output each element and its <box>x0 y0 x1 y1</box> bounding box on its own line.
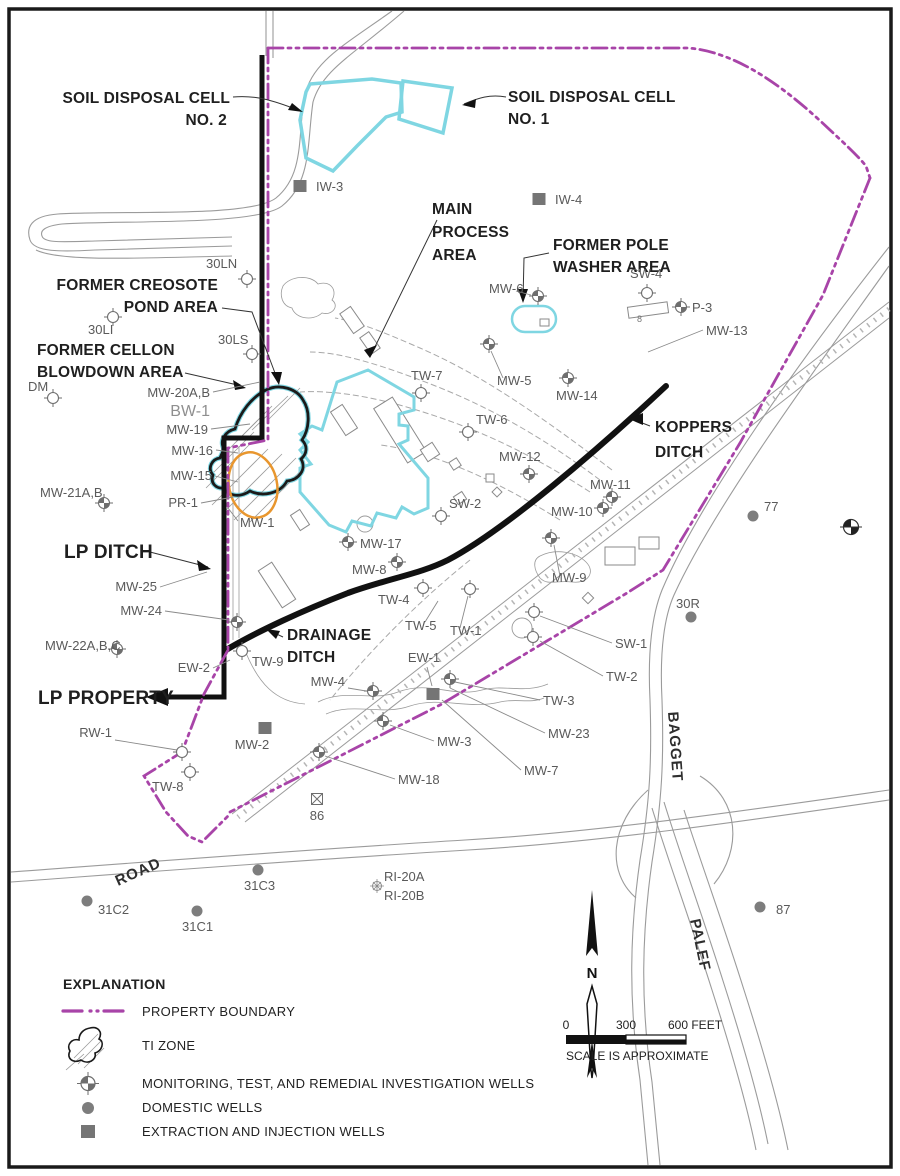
well-EW-2: EW-2 <box>178 660 210 675</box>
soil-disposal-cell-1-outline <box>399 81 452 133</box>
well-label: TW-9 <box>252 654 284 669</box>
well-label: MW-12 <box>499 449 541 464</box>
monitoring-well-icon <box>77 1072 99 1095</box>
label-cellon-blowdown: BLOWDOWN AREA <box>37 364 184 381</box>
well-30R: 30R <box>676 596 700 623</box>
well-label: SW-4 <box>630 266 662 281</box>
well-MW-16: MW-16 <box>171 443 213 458</box>
legend-item-label: TI ZONE <box>142 1038 195 1053</box>
legend-item-label: PROPERTY BOUNDARY <box>142 1004 295 1019</box>
well-MW-1: MW-1 <box>240 515 274 530</box>
well-leader-line <box>325 756 395 779</box>
well-label: MW-16 <box>171 443 213 458</box>
well-IW-4: IW-4 <box>533 192 583 207</box>
railroad-corridor <box>232 302 889 822</box>
well-label: MW-13 <box>706 323 748 338</box>
label-pole-washer: FORMER POLE <box>553 237 669 254</box>
well-31C2: 31C2 <box>82 896 130 918</box>
well-31C1: 31C1 <box>182 906 213 935</box>
well-leader-line <box>455 682 540 700</box>
well-label: BW-1 <box>170 403 210 420</box>
well-label: MW-1 <box>240 515 274 530</box>
site-map-page: SOIL DISPOSAL CELL NO. 2 SOIL DISPOSAL C… <box>0 0 900 1176</box>
scale-tick-600: 600 FEET <box>668 1018 723 1032</box>
well-label: 31C2 <box>98 902 129 917</box>
well-MW-10: MW-10 <box>551 499 612 519</box>
ti-zone-icon <box>66 1028 104 1070</box>
well-label: 30LN <box>206 256 237 271</box>
well-label: 77 <box>764 499 778 514</box>
well-TW-6: TW-6 <box>459 412 508 441</box>
well-MW-22A,B,C: MW-22A,B,C <box>45 638 126 658</box>
well-label: IW-4 <box>555 192 582 207</box>
well-leader-line <box>165 611 229 620</box>
extraction-well-icon <box>81 1125 95 1138</box>
legend-item-label: EXTRACTION AND INJECTION WELLS <box>142 1124 385 1139</box>
well-label: 31C3 <box>244 878 275 893</box>
soil-disposal-cell-2-outline <box>300 79 402 171</box>
well-MW-8: MW-8 <box>352 553 406 577</box>
label-drainage-ditch: DRAINAGE <box>287 627 371 644</box>
label-main-process: PROCESS <box>432 224 509 241</box>
label-cellon-blowdown: FORMER CELLON <box>37 342 175 359</box>
well-leader-line <box>540 641 603 676</box>
well-leader-line <box>450 688 545 733</box>
well-label: MW-5 <box>497 373 531 388</box>
well-label: MW-20A,B <box>147 385 210 400</box>
well-label: TW-3 <box>543 693 575 708</box>
legend-item-label: DOMESTIC WELLS <box>142 1100 263 1115</box>
label-soil-cell-1: NO. 1 <box>508 111 550 128</box>
well-label: MW-25 <box>115 579 157 594</box>
road-label-road: ROAD <box>113 855 164 890</box>
road-label-bagget: BAGGET <box>664 711 686 782</box>
well-label: MW-11 <box>590 477 631 492</box>
well-label: MW-23 <box>548 726 590 741</box>
well-MW-20A,B: MW-20A,B <box>147 385 210 400</box>
well-SW-2: SW-2 <box>432 496 481 525</box>
well-RI-20B: RI-20B <box>384 888 424 903</box>
well-MW-12: MW-12 <box>499 449 541 483</box>
well-label: MW-4 <box>311 674 345 689</box>
well-label: TW-1 <box>450 623 482 638</box>
scale-tick-300: 300 <box>616 1018 636 1032</box>
well-label: RI-20A <box>384 869 425 884</box>
well-MW-2: MW-2 <box>235 722 272 752</box>
well-label: TW-5 <box>405 618 437 633</box>
label-lp-property: LP PROPERTY <box>38 688 174 709</box>
well-label: MW-9 <box>552 570 586 585</box>
well-label: P-3 <box>692 300 712 315</box>
well-MW-19: MW-19 <box>166 422 208 437</box>
well-SW-4: SW-4 <box>630 266 662 302</box>
well-PR-1: PR-1 <box>168 495 198 510</box>
well-label: EW-2 <box>178 660 210 675</box>
well-label: TW-4 <box>378 592 410 607</box>
well-label: SW-1 <box>615 636 647 651</box>
scale-tick-0: 0 <box>563 1018 570 1032</box>
well-TW-7: TW-7 <box>411 368 443 402</box>
well-leader-line <box>348 688 366 691</box>
well-label: MW-17 <box>360 536 402 551</box>
label-soil-cell-2: SOIL DISPOSAL CELL <box>62 90 230 107</box>
well-label: MW-6 <box>489 281 523 296</box>
well-P-3: P-3 <box>672 298 712 316</box>
well-label: TW-7 <box>411 368 443 383</box>
well-87: 87 <box>755 902 791 918</box>
label-main-process: AREA <box>432 247 477 264</box>
map-symbol <box>441 670 459 688</box>
well-IW-3: IW-3 <box>294 179 344 194</box>
cyan-features <box>300 79 556 532</box>
well-label: 30LS <box>218 332 249 347</box>
road-label-palef: PALEF <box>686 917 714 972</box>
well-leader-line <box>160 572 207 587</box>
well-MW-13: MW-13 <box>706 323 748 338</box>
well-MW-11: MW-11 <box>590 477 631 506</box>
domestic-well-icon <box>82 1102 94 1114</box>
label-main-process: MAIN <box>432 201 472 218</box>
well-label: RI-20B <box>384 888 424 903</box>
well-leaders <box>115 291 703 779</box>
well-MW-25: MW-25 <box>115 579 157 594</box>
well-label: MW-10 <box>551 504 593 519</box>
well-label: MW-24 <box>120 603 162 618</box>
legend-item-label: MONITORING, TEST, AND REMEDIAL INVESTIGA… <box>142 1076 534 1091</box>
well-label: MW-2 <box>235 737 269 752</box>
well-MW-14: MW-14 <box>556 369 598 403</box>
legend-title: EXPLANATION <box>63 976 166 992</box>
well-leader-line <box>390 725 434 741</box>
well-TW-9: TW-9 <box>233 642 284 669</box>
well-MW-17: MW-17 <box>339 533 402 551</box>
well-TW-3: TW-3 <box>543 693 575 708</box>
well-DM: DM <box>28 379 62 407</box>
utility-symbol-8: 8 <box>637 314 642 324</box>
well-label: MW-14 <box>556 388 598 403</box>
well-label: RW-1 <box>79 725 112 740</box>
ti-zone <box>206 387 308 522</box>
label-creosote-pond: FORMER CREOSOTE <box>57 277 218 294</box>
well-label: PR-1 <box>168 495 198 510</box>
well-30LI: 30LI <box>88 308 122 337</box>
well-31C3: 31C3 <box>244 865 275 894</box>
well-30LS: 30LS <box>218 332 261 363</box>
well-label: TW-8 <box>152 779 184 794</box>
well-MW-15: MW-15 <box>170 468 212 483</box>
well-MW-7: MW-7 <box>524 763 558 778</box>
buildings <box>258 302 668 608</box>
well-MW-4: MW-4 <box>311 674 382 700</box>
well-label: TW-6 <box>476 412 508 427</box>
well-EW-1: EW-1 <box>408 650 440 700</box>
well-86: 86 <box>310 794 324 824</box>
well-label: 30LI <box>88 322 113 337</box>
well-label: MW-19 <box>166 422 208 437</box>
well-label: MW-18 <box>398 772 440 787</box>
legend: EXPLANATION PROPERTY BOUNDARY TI ZONE MO… <box>63 976 534 1139</box>
scale-bar: 0 300 600 FEET SCALE IS APPROXIMATE <box>563 1018 723 1063</box>
black-features <box>146 55 666 706</box>
well-label: 30R <box>676 596 700 611</box>
well-label: DM <box>28 379 48 394</box>
well-label: MW-21A,B <box>40 485 103 500</box>
well-label: 87 <box>776 902 790 917</box>
well-leader-line <box>648 330 703 352</box>
well-label: TW-2 <box>606 669 638 684</box>
well-TW-1: TW-1 <box>450 580 482 638</box>
well-label: SW-2 <box>449 496 481 511</box>
well-MW-18: MW-18 <box>310 743 440 787</box>
scale-note: SCALE IS APPROXIMATE <box>566 1049 709 1063</box>
well-label: 86 <box>310 808 324 823</box>
well-label: EW-1 <box>408 650 440 665</box>
label-soil-cell-2: NO. 2 <box>186 112 227 129</box>
well-MW-6: MW-6 <box>489 281 547 305</box>
label-soil-cell-1: SOIL DISPOSAL CELL <box>508 89 676 106</box>
well-label: MW-3 <box>437 734 471 749</box>
well-BW-1: BW-1 <box>170 403 210 420</box>
well-MW-21A,B: MW-21A,B <box>40 485 113 512</box>
label-lp-ditch: LP DITCH <box>64 542 153 563</box>
site-map: SOIL DISPOSAL CELL NO. 2 SOIL DISPOSAL C… <box>0 0 900 1176</box>
well-label: MW-15 <box>170 468 212 483</box>
map-symbol <box>840 520 862 535</box>
well-77: 77 <box>748 499 779 522</box>
well-label: 31C1 <box>182 919 213 934</box>
well-MW-5: MW-5 <box>480 335 531 388</box>
well-MW-23: MW-23 <box>548 726 590 741</box>
well-TW-5: TW-5 <box>405 618 437 633</box>
north-label: N <box>587 965 598 982</box>
well-label: MW-7 <box>524 763 558 778</box>
well-leader-line <box>115 740 177 750</box>
well-label: MW-22A,B,C <box>45 638 121 653</box>
label-creosote-pond: POND AREA <box>124 299 218 316</box>
label-koppers-ditch: KOPPERS <box>655 419 732 436</box>
label-koppers-ditch: DITCH <box>655 444 703 461</box>
well-label: MW-8 <box>352 562 386 577</box>
label-drainage-ditch: DITCH <box>287 649 335 666</box>
well-label: IW-3 <box>316 179 343 194</box>
